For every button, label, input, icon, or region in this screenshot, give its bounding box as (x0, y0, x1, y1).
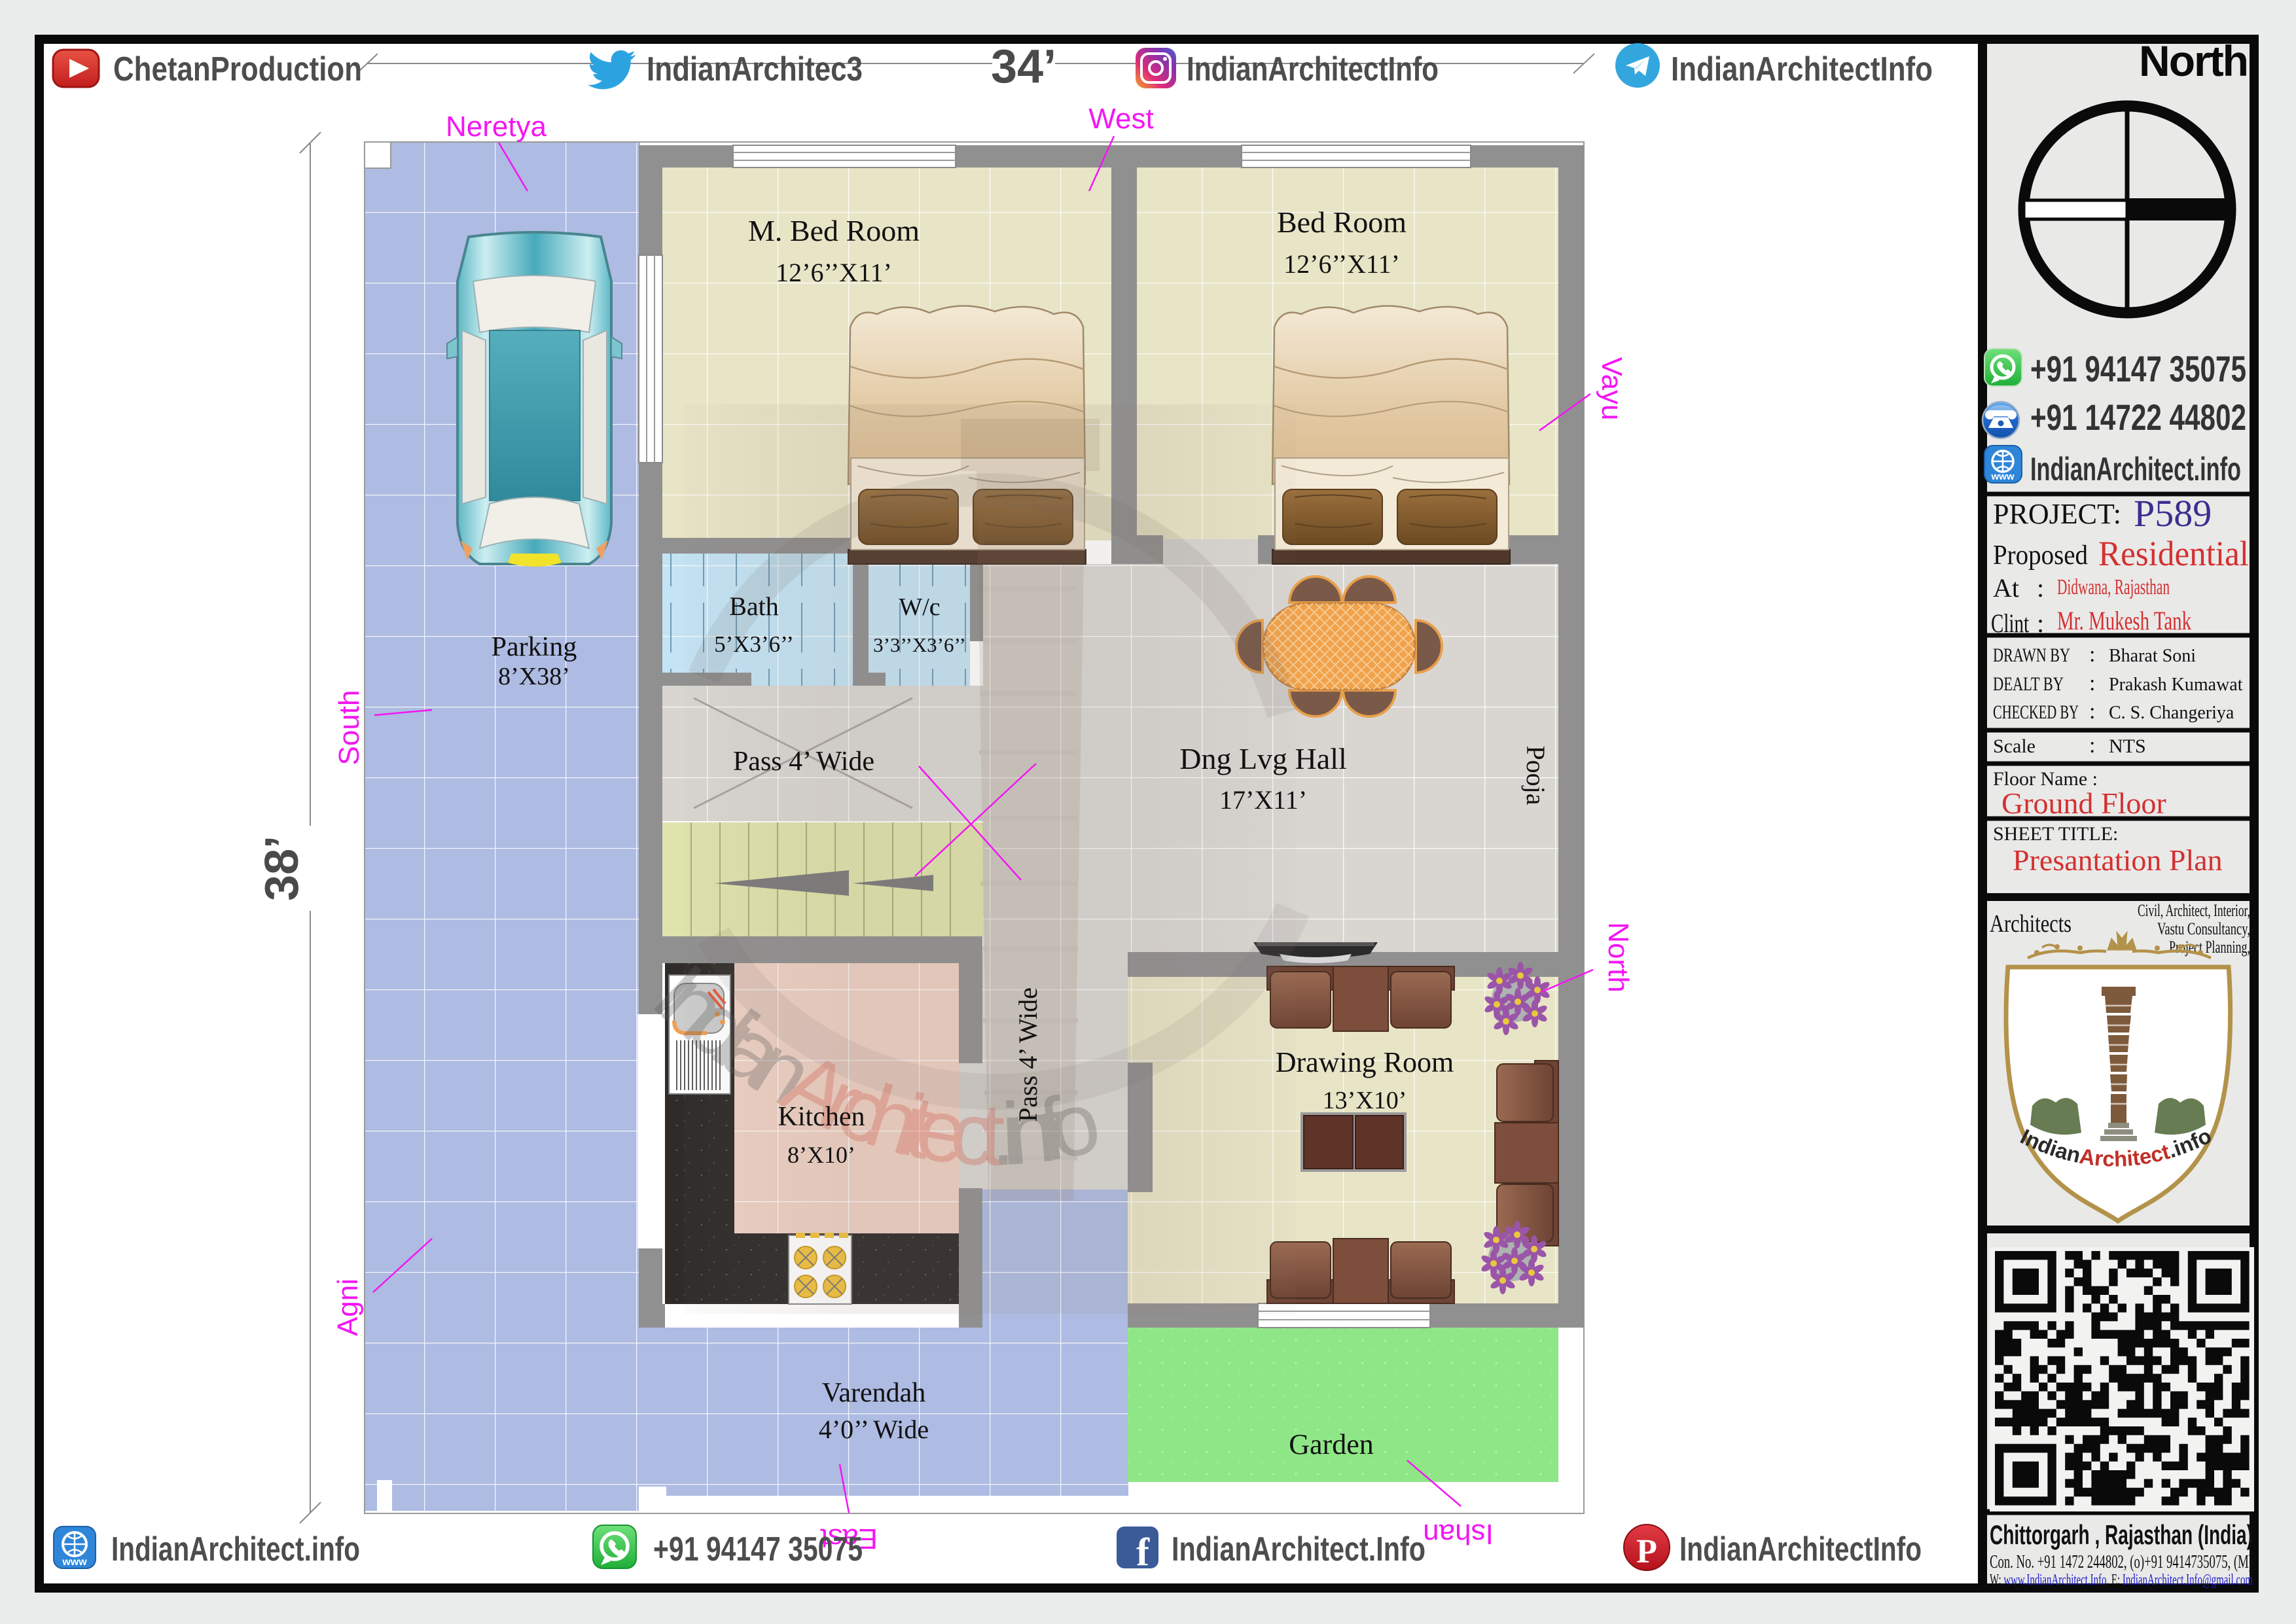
svg-text:Vastu Consultancy,: Vastu Consultancy, (2157, 919, 2250, 938)
svg-text:5’X3’6’’: 5’X3’6’’ (714, 631, 794, 657)
svg-text:Garden: Garden (1289, 1428, 1374, 1460)
svg-text:NTS: NTS (2109, 735, 2146, 757)
svg-text:IndianArchitectInfo: IndianArchitectInfo (1671, 50, 1933, 88)
svg-text:IndianArchitect.info: IndianArchitect.info (2030, 451, 2241, 487)
svg-text:M. Bed Room: M. Bed Room (748, 214, 920, 247)
svg-text::: : (2037, 609, 2044, 638)
svg-text:Ground Floor: Ground Floor (2001, 786, 2166, 820)
svg-text:IndianArchitec3: IndianArchitec3 (647, 50, 863, 88)
svg-text:Bharat Soni: Bharat Soni (2109, 646, 2196, 666)
svg-text:8’X38’: 8’X38’ (498, 663, 570, 690)
svg-text:34’: 34’ (991, 41, 1056, 93)
svg-text:Pass 4’ Wide: Pass 4’ Wide (1013, 987, 1043, 1122)
svg-text:Neretya: Neretya (446, 111, 547, 143)
svg-text:Parking: Parking (492, 632, 577, 662)
svg-text:At: At (1993, 573, 2019, 603)
svg-text::: : (2089, 733, 2095, 758)
svg-text:www: www (62, 1557, 87, 1568)
svg-text:Ishan: Ishan (1423, 1518, 1494, 1550)
svg-text:+91 14722 44802: +91 14722 44802 (2030, 397, 2246, 438)
svg-text:North: North (1602, 922, 1634, 993)
svg-text:South: South (333, 690, 365, 766)
svg-text:Vayu: Vayu (1596, 357, 1628, 420)
svg-text:Prakash Kumawat: Prakash Kumawat (2109, 675, 2243, 695)
svg-text:Dng Lvg Hall: Dng Lvg Hall (1179, 742, 1347, 775)
svg-text:DEALT BY: DEALT BY (1993, 673, 2064, 695)
svg-text:Kitchen: Kitchen (778, 1102, 865, 1132)
svg-text:Chittorgarh , Rajasthan (India: Chittorgarh , Rajasthan (India) (1990, 1519, 2253, 1550)
svg-text:Varendah: Varendah (822, 1378, 926, 1408)
svg-text::: : (2089, 643, 2095, 667)
svg-text:Pooja: Pooja (1521, 745, 1551, 805)
svg-text:W/c: W/c (899, 593, 940, 621)
svg-text::: : (2089, 699, 2095, 724)
svg-text:ChetanProduction: ChetanProduction (113, 50, 362, 88)
svg-text:PROJECT:: PROJECT: (1993, 498, 2121, 530)
svg-text:13’X10’: 13’X10’ (1323, 1087, 1407, 1114)
svg-text:IndianArchitectInfo: IndianArchitectInfo (1187, 50, 1439, 88)
svg-text:Mr. Mukesh Tank: Mr. Mukesh Tank (2057, 606, 2191, 635)
svg-text:IndianArchitect.info: IndianArchitect.info (111, 1530, 360, 1568)
svg-text::: : (2089, 671, 2095, 696)
svg-text:W: www.IndianArchitect.Info,: W: www.IndianArchitect.Info, E: IndianAr… (1990, 1572, 2253, 1589)
svg-text:P589: P589 (2134, 492, 2212, 535)
svg-text:8’X10’: 8’X10’ (787, 1142, 855, 1168)
svg-text:www: www (1990, 471, 2014, 482)
svg-text:SHEET TITLE:: SHEET TITLE: (1993, 823, 2118, 845)
svg-text:Architects: Architects (1990, 910, 2072, 938)
svg-text:IndianArchitectInfo: IndianArchitectInfo (1679, 1530, 1922, 1568)
svg-text:12’6’’X11’: 12’6’’X11’ (776, 258, 892, 287)
svg-text:Residential: Residential (2098, 534, 2249, 573)
svg-text:3’3’’X3’6’’: 3’3’’X3’6’’ (873, 633, 966, 656)
svg-text:IndianArchitect.Info: IndianArchitect.Info (1172, 1530, 1426, 1568)
svg-text:Presantation Plan: Presantation Plan (2013, 843, 2223, 877)
svg-text:Drawing Room: Drawing Room (1276, 1046, 1454, 1078)
svg-text:Didwana, Rajasthan: Didwana, Rajasthan (2057, 575, 2170, 599)
svg-text:Civil, Architect, Interior,: Civil, Architect, Interior, (2138, 901, 2250, 920)
svg-text:C. S. Changeriya: C. S. Changeriya (2109, 703, 2234, 723)
svg-text:Scale: Scale (1993, 735, 2036, 757)
svg-text:Agni: Agni (332, 1279, 364, 1336)
svg-text:f: f (1136, 1530, 1150, 1574)
svg-text:Bed Room: Bed Room (1277, 205, 1407, 239)
svg-text:Proposed: Proposed (1993, 540, 2088, 571)
svg-text:CHECKED BY: CHECKED BY (1993, 701, 2079, 723)
svg-text:Pass 4’ Wide: Pass 4’ Wide (733, 747, 874, 777)
svg-text:+91 94147 35075: +91 94147 35075 (653, 1530, 863, 1568)
svg-text:West: West (1088, 103, 1153, 135)
svg-text:P: P (1636, 1533, 1657, 1570)
svg-text:Clint: Clint (1991, 609, 2029, 638)
svg-text:North: North (2139, 37, 2248, 85)
svg-text:Con. No. +91 1472 244802, (o)+: Con. No. +91 1472 244802, (o)+91 9414735… (1990, 1552, 2253, 1572)
svg-text:4’0’’ Wide: 4’0’’ Wide (819, 1415, 929, 1444)
svg-text:17’X11’: 17’X11’ (1219, 785, 1307, 815)
svg-text::: : (2037, 573, 2044, 603)
svg-text:Bath: Bath (729, 591, 779, 621)
svg-text:+91 94147 35075: +91 94147 35075 (2030, 348, 2246, 389)
svg-text:12’6’’X11’: 12’6’’X11’ (1283, 249, 1400, 279)
svg-text:38’: 38’ (256, 836, 308, 901)
svg-text:DRAWN BY: DRAWN BY (1993, 644, 2070, 666)
